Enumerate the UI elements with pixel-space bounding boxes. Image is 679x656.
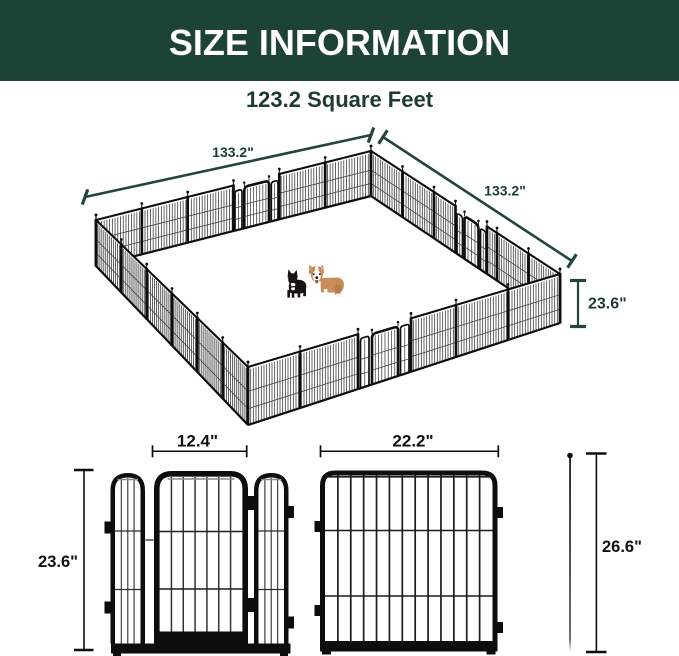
- svg-text:26.6": 26.6": [602, 538, 642, 556]
- svg-text:12.4": 12.4": [177, 432, 218, 451]
- svg-text:22.2": 22.2": [392, 432, 433, 451]
- svg-text:23.6": 23.6": [588, 296, 627, 313]
- svg-text:23.6": 23.6": [38, 553, 78, 571]
- svg-text:133.2": 133.2": [484, 183, 526, 199]
- svg-text:133.2": 133.2": [212, 144, 254, 160]
